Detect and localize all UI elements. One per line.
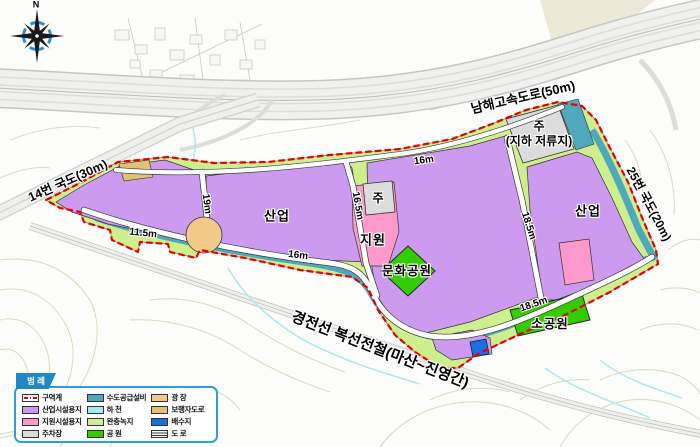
parking-retention-label: 주: [533, 120, 544, 132]
legend-swatch-boundary: [22, 394, 39, 402]
legend-column-1: 구역계 산업시설용지 지원시설용지 주차장: [22, 392, 83, 439]
industry-west-label: 산업: [264, 210, 290, 223]
legend-swatch-water-supply: [87, 394, 104, 402]
compass-north-label: N: [33, 1, 40, 10]
legend-item-water-supply: 수도공급설비: [87, 392, 148, 403]
legend-item-plaza: 광 장: [151, 392, 212, 403]
legend-item-boundary: 구역계: [22, 392, 83, 403]
legend-swatch-plaza: [151, 394, 168, 402]
small-park-label: 소공원: [531, 318, 569, 331]
culture-park-label: 문화공원: [382, 265, 432, 278]
legend-item-reservoir: 배수지: [151, 416, 212, 427]
legend: 범 례 구역계 산업시설용지 지원시설용지 주차장: [14, 373, 218, 443]
legend-item-pedestrian: 보행자도로: [151, 404, 212, 415]
land-use-plan-map: N 남해고속도로(50m) 14번 국도(30m) 25번 국도(20m) 경전…: [0, 0, 700, 447]
legend-item-buffer-green: 완충녹지: [87, 416, 148, 427]
legend-swatch-pedestrian: [151, 406, 168, 414]
legend-swatch-support: [22, 418, 39, 426]
legend-swatch-buffer-green: [87, 418, 104, 426]
legend-item-parking: 주차장: [22, 428, 83, 439]
legend-item-support: 지원시설용지: [22, 416, 83, 427]
legend-swatch-river: [87, 406, 104, 414]
legend-column-2: 수도공급설비 하 천 완충녹지 공 원: [87, 392, 148, 439]
legend-column-3: 광 장 보행자도로 배수지 도 로: [151, 392, 212, 439]
industry-east-label: 산업: [575, 205, 601, 218]
legend-item-river: 하 천: [87, 404, 148, 415]
legend-item-road: 도 로: [151, 428, 212, 439]
width-19m-label: 19m: [200, 193, 213, 214]
parking-small-label: 주: [372, 192, 383, 204]
legend-item-park: 공 원: [87, 428, 148, 439]
legend-swatch-park: [87, 430, 104, 438]
legend-item-industrial: 산업시설용지: [22, 404, 83, 415]
legend-swatch-reservoir: [151, 418, 168, 426]
legend-swatch-parking: [22, 430, 39, 438]
plaza-block: [186, 217, 222, 253]
retention-sub-label: (지하 저류지): [506, 135, 573, 147]
legend-box: 구역계 산업시설용지 지원시설용지 주차장 수도공급설비: [14, 386, 218, 443]
parcel-support-east: [559, 239, 594, 285]
legend-swatch-road: [151, 430, 168, 438]
support-label: 지원: [360, 234, 386, 247]
legend-swatch-industrial: [22, 406, 39, 414]
